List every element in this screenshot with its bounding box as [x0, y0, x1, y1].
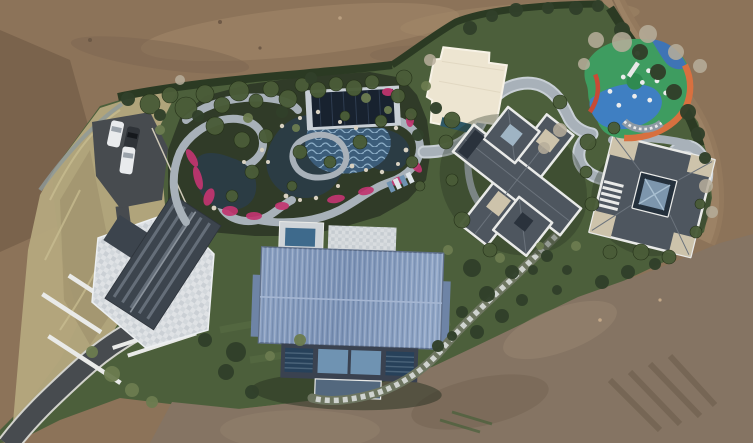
aerial-photo-stage [0, 0, 753, 443]
small-pool [285, 228, 316, 247]
aerial-photo [0, 0, 753, 443]
upper-plaza [328, 225, 397, 251]
